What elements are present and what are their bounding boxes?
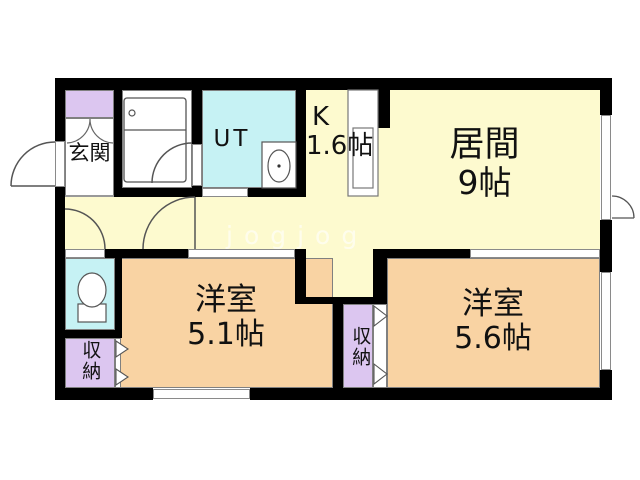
wall — [600, 78, 612, 115]
label-kitchen: K 1.6帖 — [306, 103, 373, 161]
label-genkan: 玄関 — [65, 142, 114, 166]
label-ut: UT — [202, 127, 262, 153]
label-kitchen-name: K — [306, 103, 373, 132]
label-storage1: 収納 — [79, 340, 100, 390]
entrance-door-opening — [55, 141, 65, 187]
bathroom-door-opening — [192, 144, 202, 186]
wall — [55, 388, 153, 400]
watermark: jogjog — [226, 221, 368, 250]
bedroom1-door-opening — [188, 249, 295, 258]
room-toilet — [65, 258, 115, 330]
label-living-name: 居間 — [382, 126, 587, 165]
wall — [115, 249, 122, 338]
wall — [378, 90, 390, 128]
label-bedroom2: 洋室 5.6帖 — [388, 287, 598, 355]
wall — [387, 249, 470, 258]
balcony-door-swing-arc — [612, 196, 634, 218]
wall — [55, 186, 65, 400]
genkan-step-line — [65, 195, 114, 197]
toilet-door-opening — [65, 249, 105, 258]
wall — [114, 90, 122, 197]
wall — [192, 186, 202, 197]
window-living-right — [601, 115, 611, 220]
ut-hall-opening — [202, 188, 248, 197]
wall — [296, 90, 306, 197]
wall — [192, 90, 202, 144]
entrance-door-swing-arc — [11, 142, 55, 186]
window-bedroom2-right — [601, 272, 611, 370]
wall — [333, 304, 343, 388]
label-living: 居間 9帖 — [382, 126, 587, 202]
label-bedroom1: 洋室 5.1帖 — [122, 283, 330, 351]
floorplan: 玄関 UT K 1.6帖 居間 9帖 洋室 5.1帖 洋室 5.6帖 収納 収納… — [0, 0, 640, 480]
label-bedroom1-size: 5.1帖 — [122, 318, 330, 352]
wall — [373, 249, 387, 304]
shoe-cabinet — [65, 90, 114, 118]
room-bathroom — [122, 90, 192, 188]
wall — [248, 188, 296, 197]
label-bedroom2-size: 5.6帖 — [388, 322, 598, 356]
label-bedroom2-name: 洋室 — [388, 287, 598, 322]
wall — [65, 330, 122, 338]
wall — [55, 78, 65, 142]
label-bedroom1-name: 洋室 — [122, 283, 330, 318]
label-kitchen-size: 1.6帖 — [306, 132, 373, 161]
label-storage2: 収納 — [349, 326, 370, 378]
living-bedroom2-opening — [470, 249, 600, 258]
wall — [122, 188, 192, 197]
wall — [250, 388, 612, 400]
wall — [55, 78, 612, 90]
label-living-size: 9帖 — [382, 165, 587, 202]
storage2-folding-door — [373, 304, 387, 388]
window-bottom — [153, 389, 250, 399]
wall — [600, 220, 612, 272]
